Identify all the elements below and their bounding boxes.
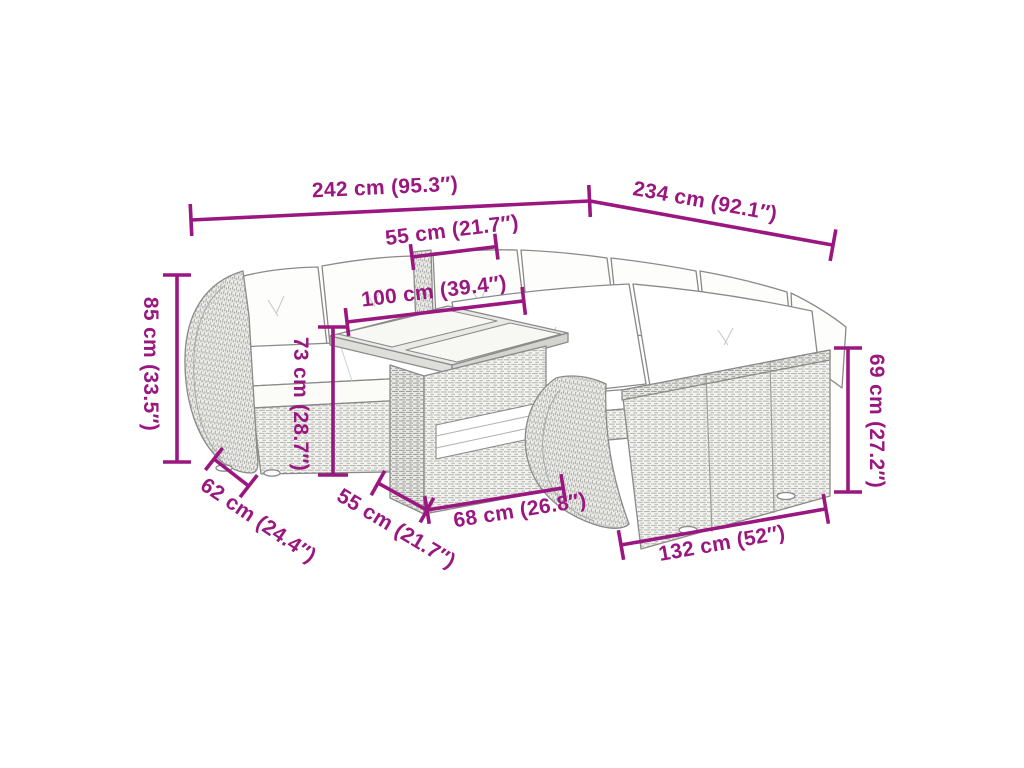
sofa-foot — [264, 470, 280, 476]
dimension-label-backrest-height-left: 85 cm (33.5″) — [138, 297, 162, 431]
dimension-label-table-height: 73 cm (28.7″) — [288, 337, 312, 471]
dimension-label-backrest-height-right: 69 cm (27.2″) — [864, 354, 888, 488]
left-armrest — [185, 271, 258, 473]
dimension-diagram: 242 cm (95.3″) 234 cm (92.1″) 55 cm (21.… — [0, 0, 1024, 768]
